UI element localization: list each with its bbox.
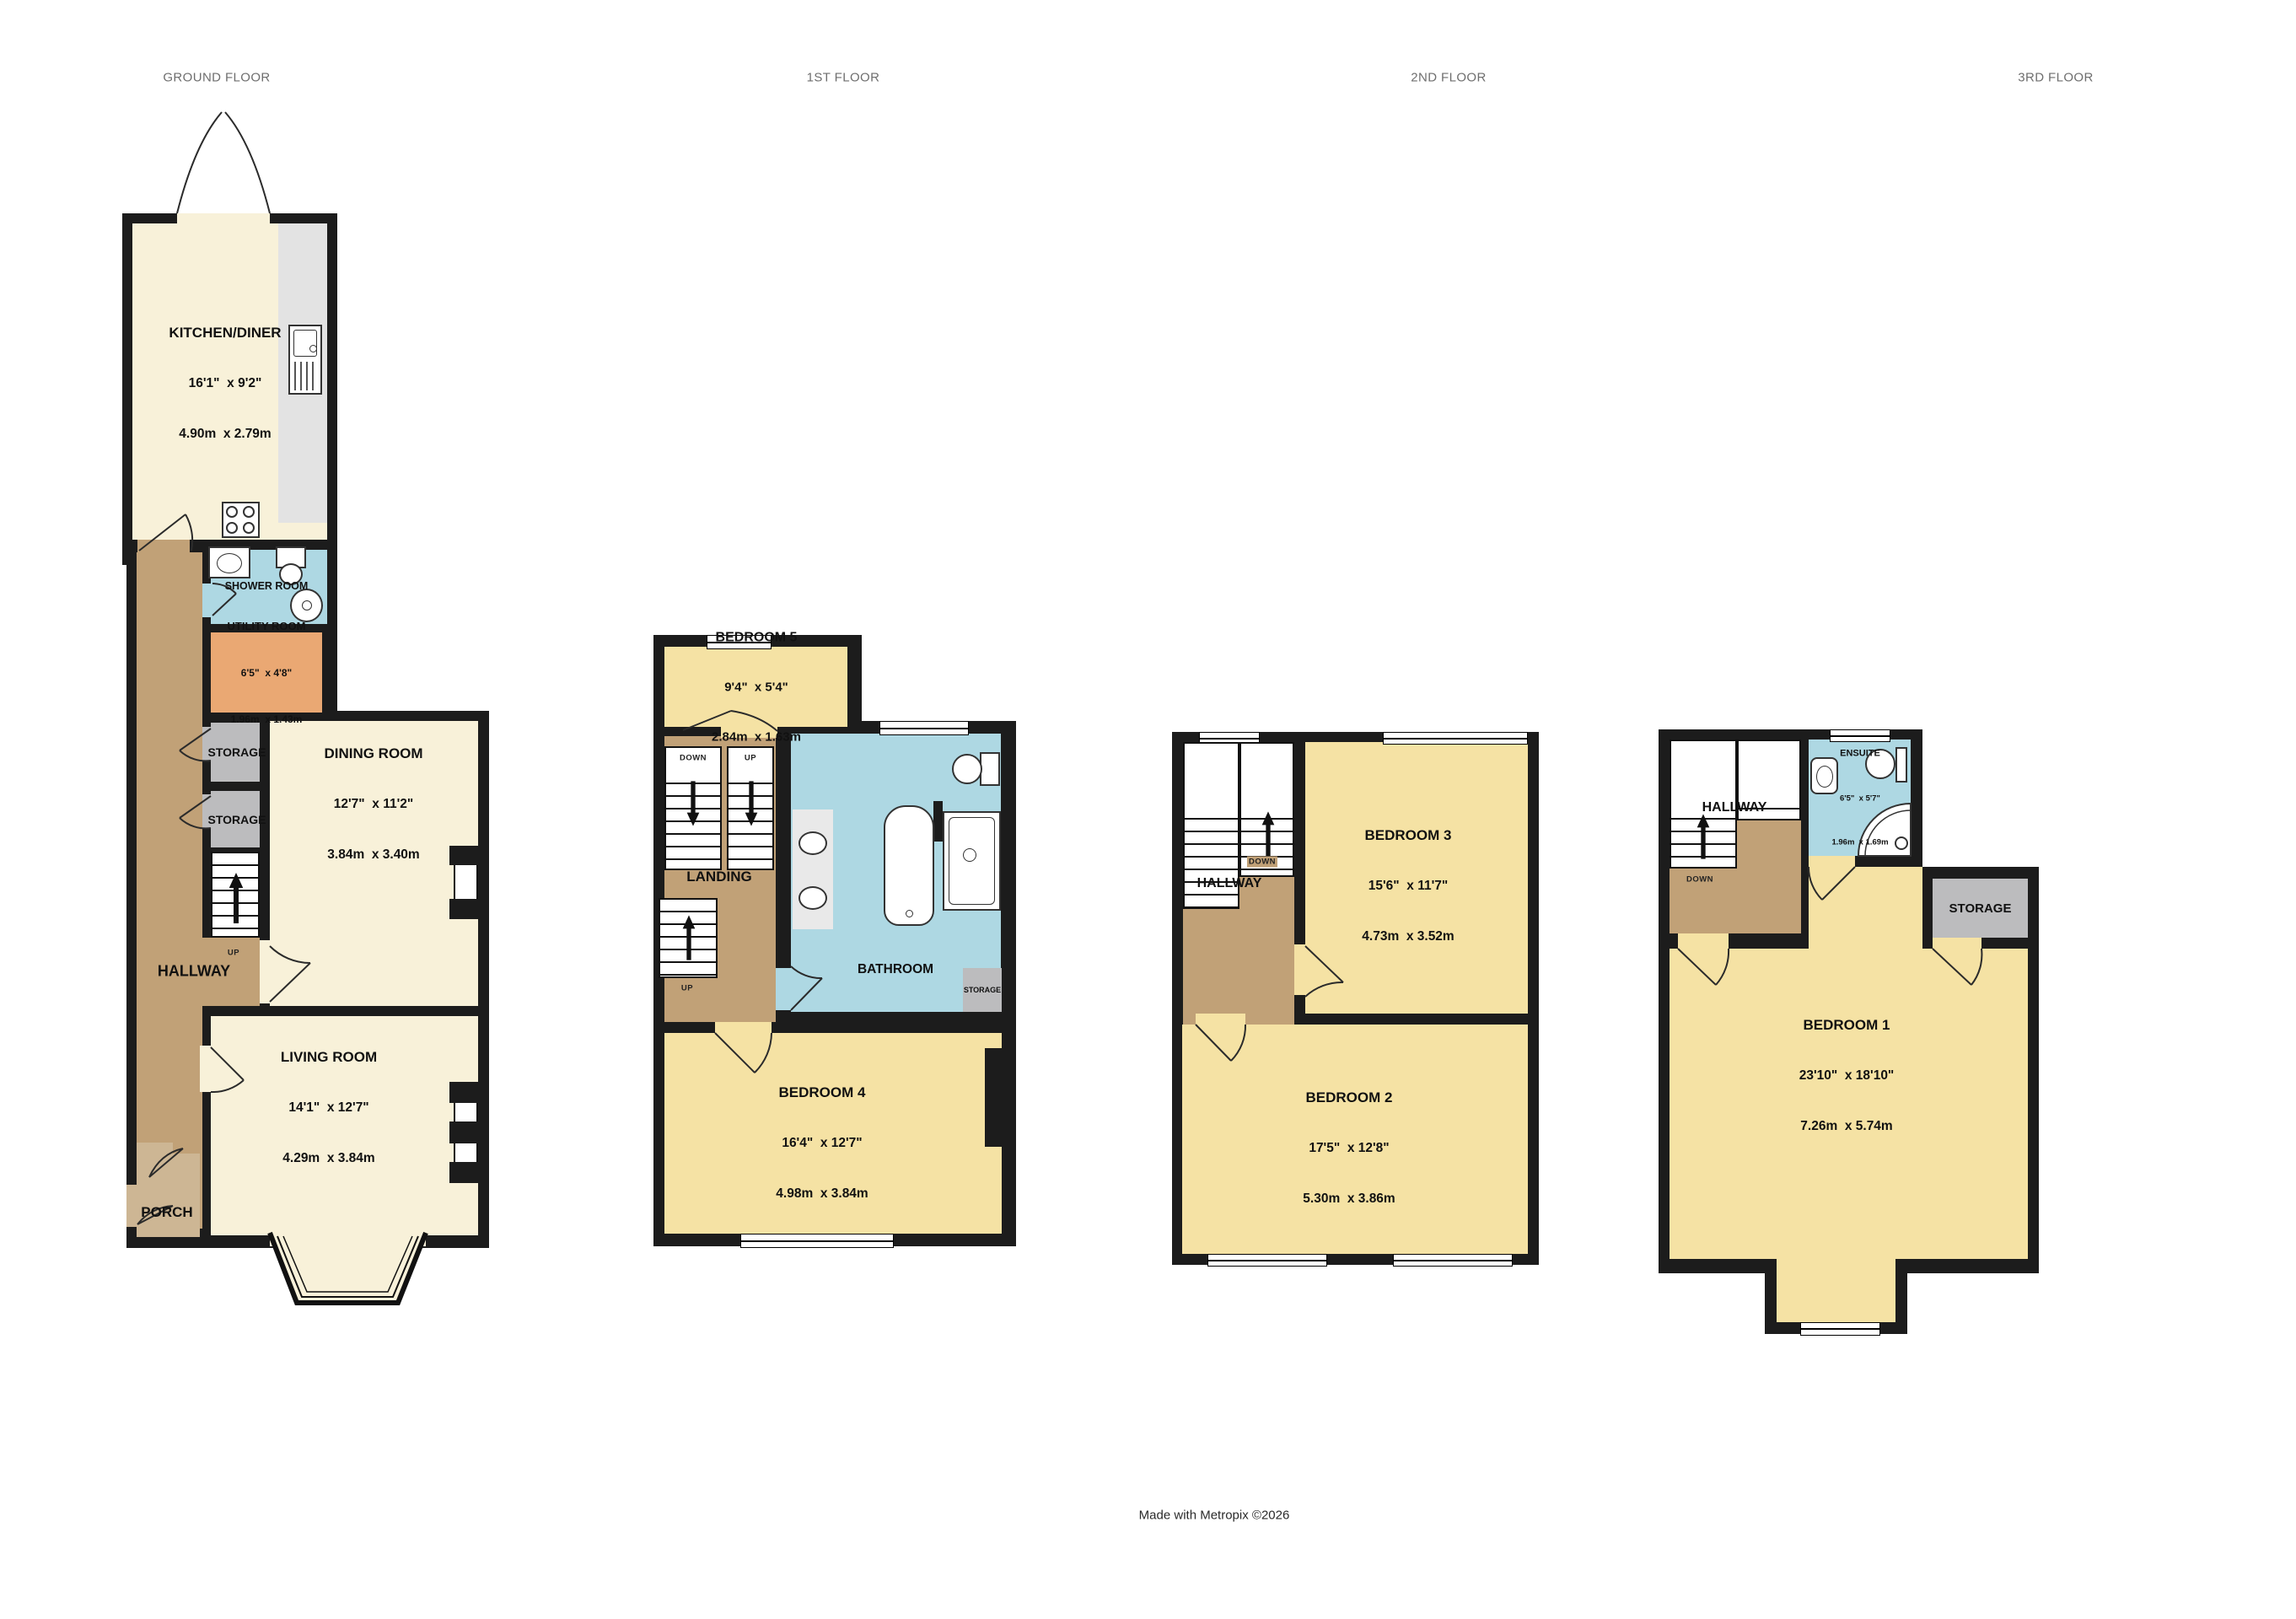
kitchen-label: KITCHEN/DINER 16'1" x 9'2" 4.90m x 2.79m [169,290,281,476]
storage-2-label: STORAGE [208,813,266,826]
ensuite-label: ENSUITE 6'5" x 5'7" 1.96m x 1.69m [1831,714,1888,881]
down-label: DOWN [1685,874,1715,885]
landing-label: LANDING [686,869,751,885]
second-floor-plan: DOWN HALLWAY BEDROOM 3 15'6" x 11'7" 4.7… [1168,725,1543,1273]
floorplan-page: GROUND FLOOR 1ST FLOOR 2ND FLOOR 3RD FLO… [0,0,2296,1619]
hallway-label: HALLWAY [1197,876,1262,891]
third-floor-plan: STORAGE DOWN HALLWAY [1653,725,2053,1349]
floor-title-first: 1ST FLOOR [807,71,880,85]
bedroom4-label: BEDROOM 4 16'4" x 12'7" 4.98m x 3.84m [776,1050,868,1235]
dining-label: DINING ROOM 12'7" x 11'2" 3.84m x 3.40m [324,711,422,896]
bedroom3-label: BEDROOM 3 15'6" x 11'7" 4.73m x 3.52m [1362,793,1454,978]
down-label: DOWN [1247,857,1277,868]
storage-1-label: STORAGE [208,745,266,759]
up-label: UP [228,949,239,958]
metropix-credit: Made with Metropix ©2026 [1139,1509,1290,1523]
ground-floor-plan: UP [114,84,510,1324]
floor-title-ground: GROUND FLOOR [163,71,270,85]
utility-label: UTILITY ROOM 6'5" x 4'8" 1.96m x 1.43m [228,586,306,760]
first-floor-plan: STORAGE DOWN UP UP [649,632,1024,1261]
bathroom-label: BATHROOM [858,962,933,977]
hallway-label: HALLWAY [1702,800,1767,815]
living-label: LIVING ROOM 14'1" x 12'7" 4.29m x 3.84m [281,1014,377,1200]
porch-label: PORCH [141,1204,192,1221]
bedroom2-label: BEDROOM 2 17'5" x 12'8" 5.30m x 3.86m [1303,1055,1395,1240]
floor-title-second: 2ND FLOOR [1411,71,1486,85]
floor-title-third: 3RD FLOOR [2018,71,2093,85]
up-label: UP [681,984,693,993]
hallway-label: HALLWAY [158,963,230,981]
bedroom1-label: BEDROOM 1 23'10" x 18'10" 7.26m x 5.74m [1799,982,1895,1168]
bedroom5-label: BEDROOM 5 9'4" x 5'4" 2.84m x 1.63m [712,595,801,779]
